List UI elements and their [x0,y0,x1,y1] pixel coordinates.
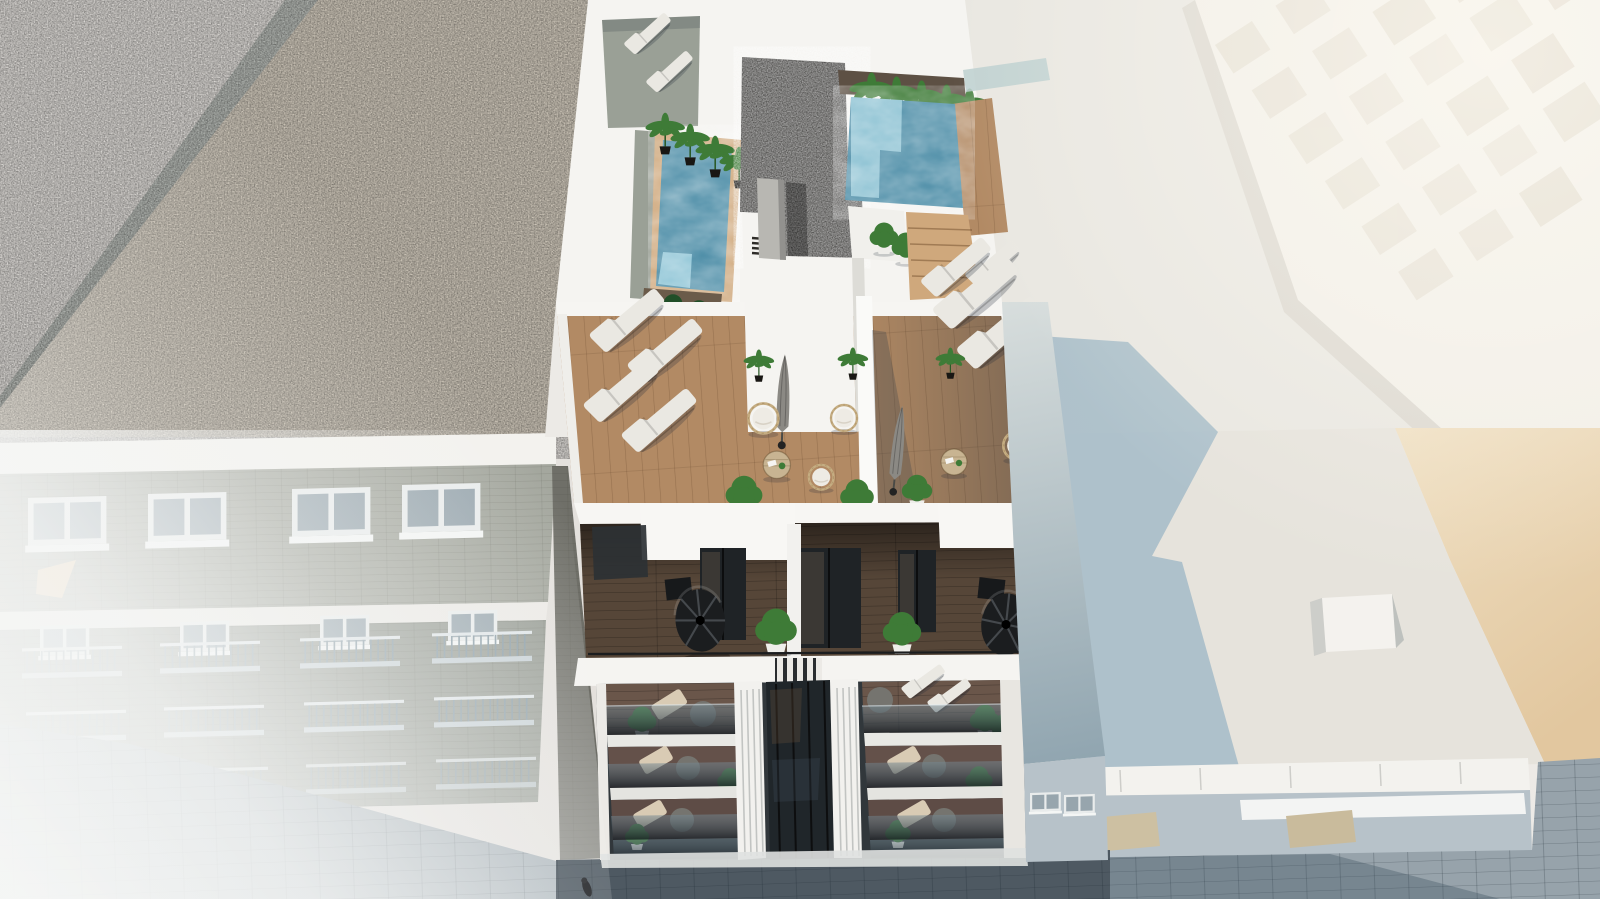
fog-overlay-2 [0,430,612,899]
render-canvas [0,0,1600,899]
architectural-rendering [0,0,1600,899]
